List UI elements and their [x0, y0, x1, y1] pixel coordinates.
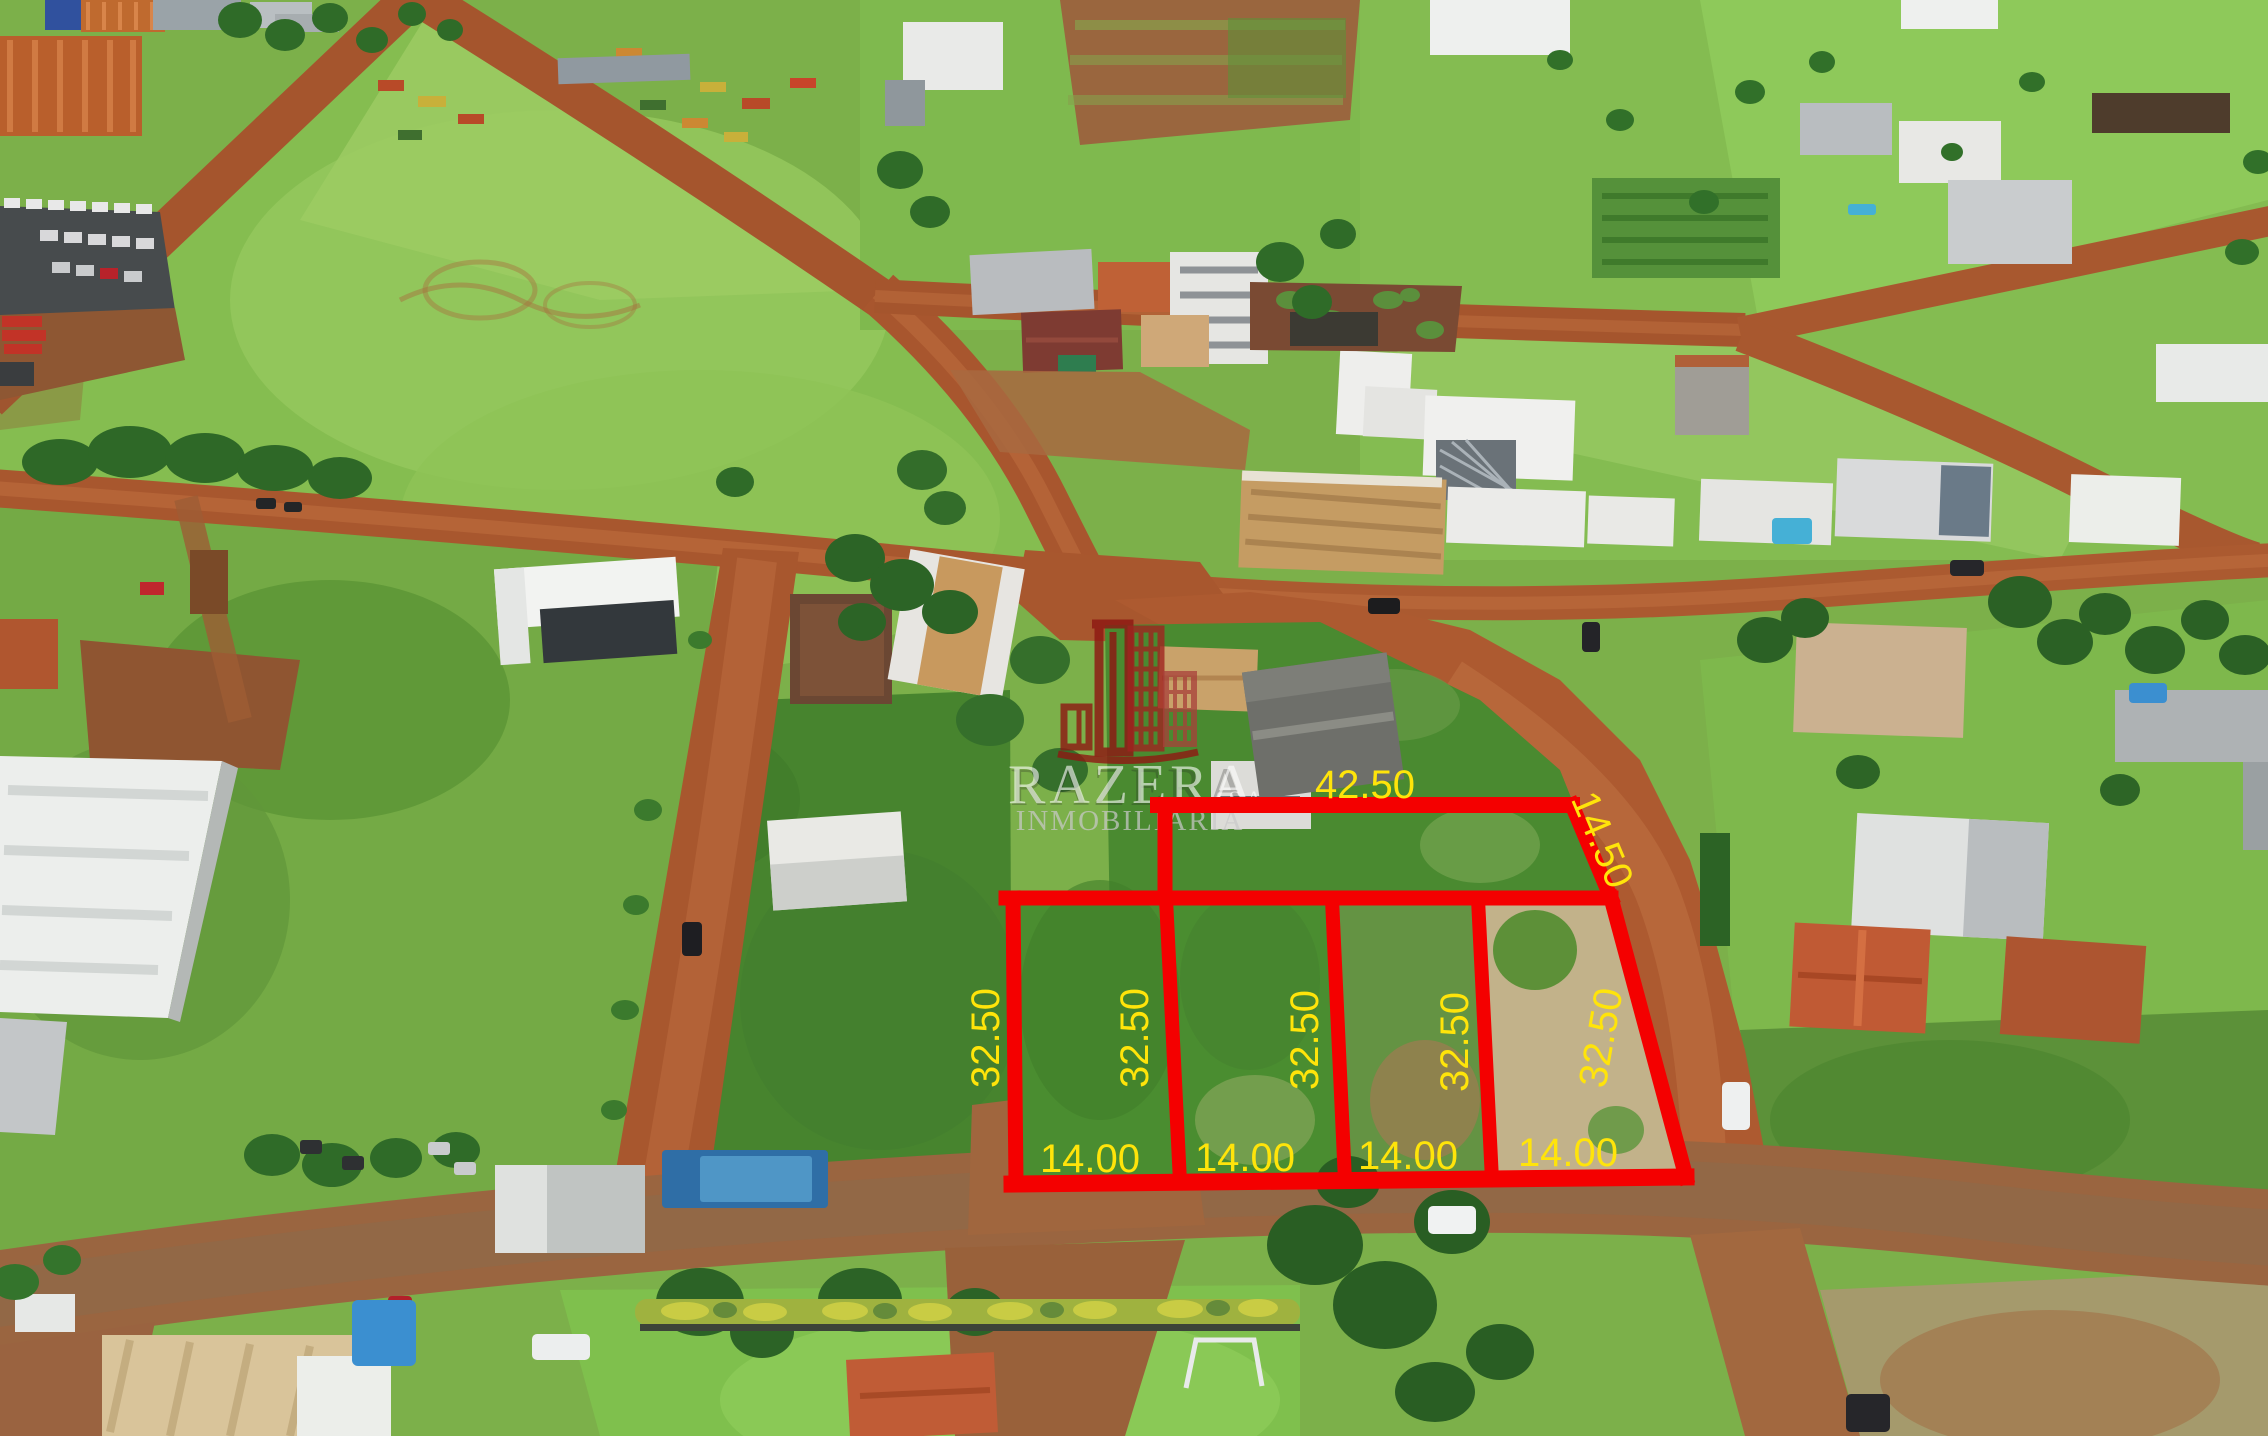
svg-text:14.00: 14.00	[1195, 1136, 1295, 1180]
svg-text:32.50: 32.50	[1113, 988, 1157, 1088]
svg-text:32.50: 32.50	[1283, 990, 1327, 1090]
svg-text:32.50: 32.50	[964, 988, 1008, 1088]
svg-text:14.00: 14.00	[1518, 1131, 1618, 1175]
svg-text:14.00: 14.00	[1040, 1137, 1140, 1181]
svg-text:42.50: 42.50	[1315, 763, 1415, 807]
svg-text:32.50: 32.50	[1433, 992, 1477, 1092]
svg-text:14.00: 14.00	[1358, 1134, 1458, 1178]
